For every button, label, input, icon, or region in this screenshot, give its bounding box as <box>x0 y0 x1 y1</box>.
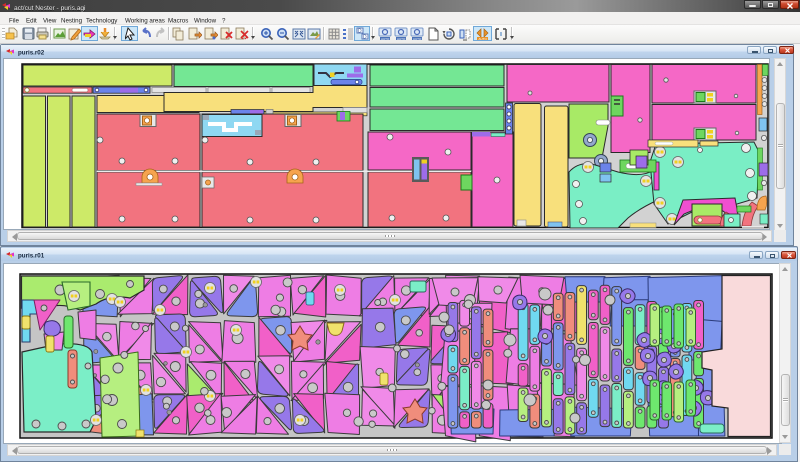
svg-text:D: D <box>363 35 367 41</box>
svg-text:AUTO: AUTO <box>381 37 390 41</box>
svg-text:AUTO: AUTO <box>479 37 488 41</box>
svg-text:AUTO: AUTO <box>397 37 406 41</box>
svg-text:D: D <box>358 29 362 35</box>
svg-text:AUTO: AUTO <box>413 37 422 41</box>
